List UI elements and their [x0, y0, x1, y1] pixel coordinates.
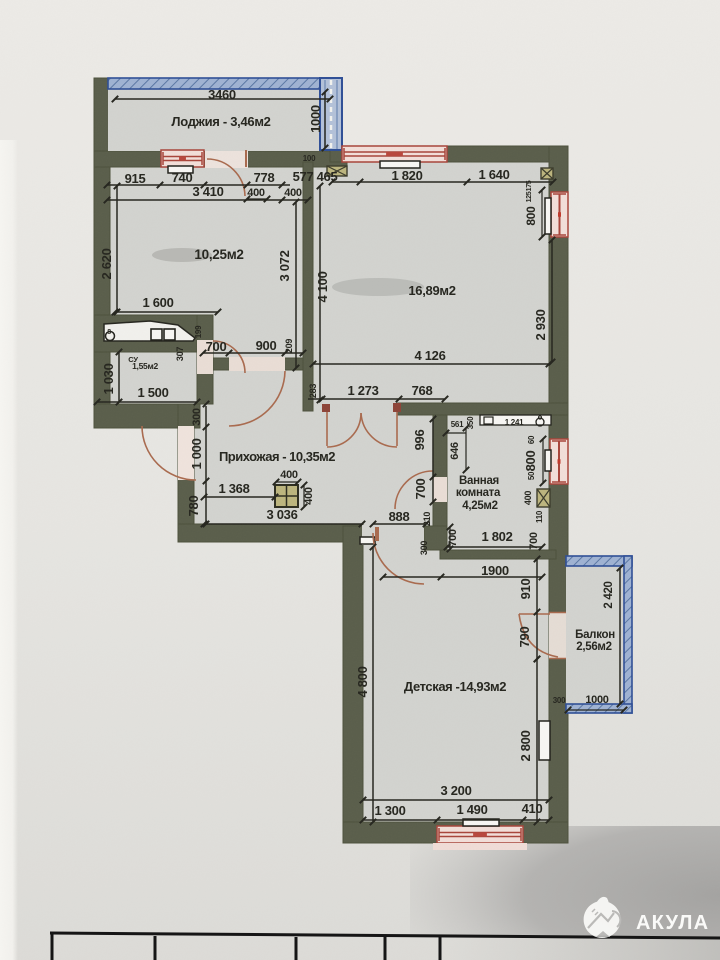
svg-text:АКУЛА: АКУЛА — [636, 912, 709, 934]
